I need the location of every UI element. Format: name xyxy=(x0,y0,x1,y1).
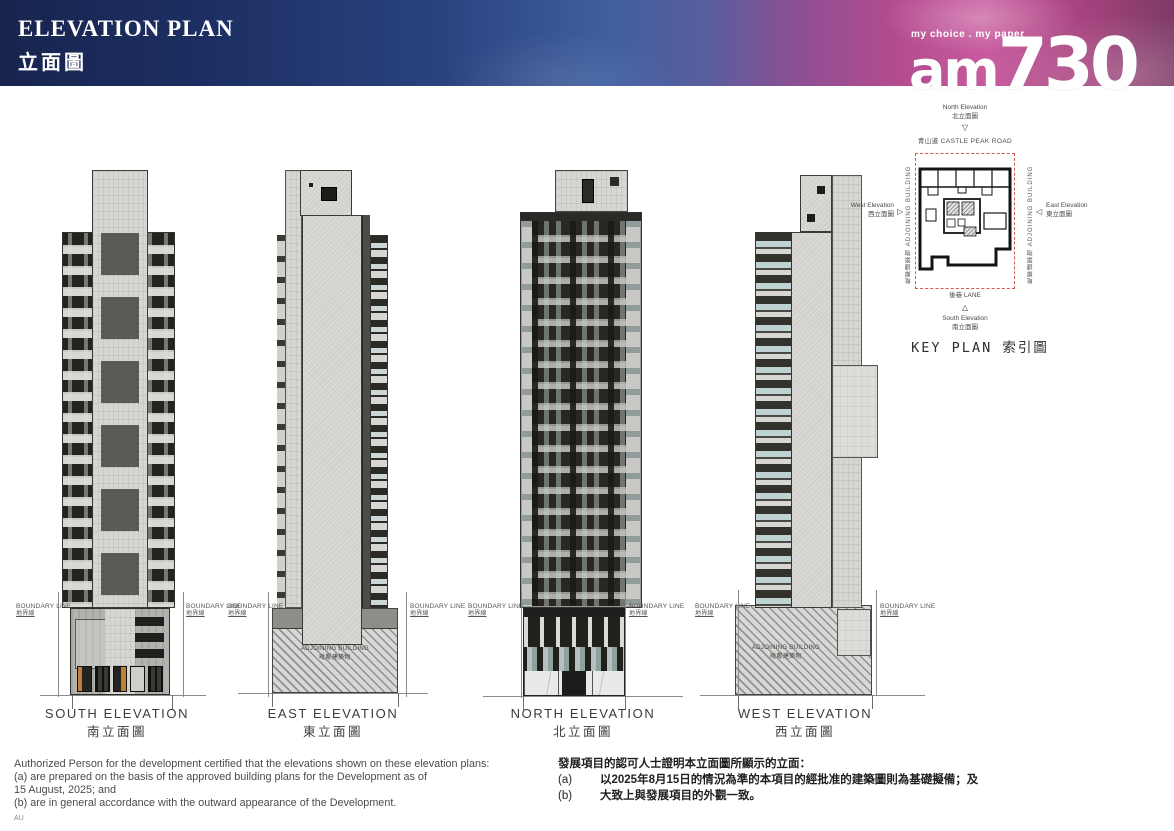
note-en-line1: Authorized Person for the development ce… xyxy=(14,758,534,771)
am730-logo: my choice . my paper am730 xyxy=(909,30,1136,100)
boundary-line-label: BOUNDARY LINE 地界線 xyxy=(228,603,283,619)
note-en-line2: (a) are prepared on the basis of the app… xyxy=(14,771,534,784)
footnote-code: AU xyxy=(14,815,24,822)
boundary-line-label: BOUNDARY LINE 地界線 xyxy=(16,603,71,619)
adjoining-label-en: ADJOINING BUILDING xyxy=(273,645,397,654)
ground-line xyxy=(238,693,428,694)
note-zh-b-text: 大致上與發展項目的外觀一致。 xyxy=(600,788,761,804)
boundary-label-zh: 地界線 xyxy=(468,611,523,619)
ground-line xyxy=(40,695,206,696)
west-elevation-label-zh: 西立面圖 xyxy=(700,721,910,740)
header-banner: ELEVATION PLAN 立面圖 my choice . my paper … xyxy=(0,0,1174,86)
key-plan-title: KEY PLAN 索引圖 xyxy=(850,336,1110,356)
north-label-en: North Elevation xyxy=(885,104,1045,113)
east-main-wall xyxy=(302,215,362,645)
logo-number: 730 xyxy=(998,22,1136,106)
shopfront-unit xyxy=(77,666,92,692)
west-label-en: West Elevation xyxy=(834,202,894,211)
ground-line xyxy=(700,695,925,696)
shopfront-unit xyxy=(130,666,145,692)
castle-peak-road-label: 青山道 CASTLE PEAK ROAD xyxy=(885,138,1045,147)
adjoining-building-label: ADJOINING BUILDING 毗鄰建築物 xyxy=(736,644,836,662)
key-plan-south-label: South Elevation 南立面圖 xyxy=(885,315,1045,333)
east-edge-windows xyxy=(277,235,285,608)
south-shopfront-row xyxy=(77,666,163,692)
dimension-tick xyxy=(272,693,273,707)
east-dark-band xyxy=(362,215,370,608)
key-plan: North Elevation 北立面圖 ▽ 青山道 CASTLE PEAK R… xyxy=(840,96,1174,368)
adjoining-building-label: ADJOINING BUILDING 毗鄰建築物 xyxy=(273,645,397,663)
north-podium-mullions xyxy=(524,617,624,647)
note-en-line3: 15 August, 2025; and xyxy=(14,784,534,797)
logo-wordmark: am730 xyxy=(909,28,1136,100)
north-elevation-label-zh: 北立面圖 xyxy=(478,721,688,740)
note-zh-item-b: (b) 大致上與發展項目的外觀一致。 xyxy=(558,788,998,804)
west-window-strip xyxy=(755,232,792,608)
adjoining-building-vertical-left: 毗鄰建築物 ADJOINING BUILDING xyxy=(904,162,913,288)
adjoining-building-vertical-right: 毗鄰建築物 ADJOINING BUILDING xyxy=(1026,162,1035,288)
west-top-structure xyxy=(800,175,832,232)
triangle-down-icon: ▽ xyxy=(885,124,1045,132)
south-podium xyxy=(70,608,170,695)
east-elevation-label: EAST ELEVATION xyxy=(228,706,438,721)
boundary-line-right xyxy=(876,590,877,696)
triangle-up-icon: △ xyxy=(885,304,1045,312)
shopfront-unit xyxy=(95,666,110,692)
north-parapet xyxy=(521,213,641,221)
page-title-block: ELEVATION PLAN 立面圖 xyxy=(18,16,234,75)
boundary-label-zh: 地界線 xyxy=(410,611,465,619)
west-label-zh: 西立面圖 xyxy=(834,211,894,220)
north-entrance-door xyxy=(562,671,586,695)
east-core-side-wall xyxy=(285,170,302,608)
west-top-window xyxy=(807,214,815,222)
east-label-en: East Elevation xyxy=(1046,202,1116,211)
boundary-line-label: BOUNDARY LINE 地界線 xyxy=(629,603,684,619)
boundary-line-right xyxy=(406,592,407,697)
east-roof-window xyxy=(321,187,337,201)
adjoining-label-zh: 毗鄰建築物 xyxy=(273,654,397,663)
lane-label: 後巷 LANE xyxy=(885,292,1045,301)
key-plan-north-label: North Elevation 北立面圖 xyxy=(885,104,1045,122)
north-podium-fascia xyxy=(524,609,624,617)
south-label-en: South Elevation xyxy=(885,315,1045,324)
page-title: ELEVATION PLAN xyxy=(18,16,234,42)
certification-note-en: Authorized Person for the development ce… xyxy=(14,758,534,810)
east-window-strip xyxy=(370,235,388,608)
brochure-page: ELEVATION PLAN 立面圖 my choice . my paper … xyxy=(0,0,1174,831)
note-zh-line1: 發展項目的認可人士證明本立面圖所顯示的立面： xyxy=(558,756,998,772)
south-elevation-drawing: BOUNDARY LINE 地界線 BOUNDARY LINE 地界線 SOUT… xyxy=(14,162,220,732)
logo-am: am xyxy=(909,39,998,102)
boundary-line-right xyxy=(625,592,626,698)
boundary-label-zh: 地界線 xyxy=(629,611,684,619)
north-podium xyxy=(523,608,625,696)
key-plan-east-label: East Elevation 東立面圖 xyxy=(1046,202,1116,220)
note-zh-item-a: (a) 以2025年8月15日的情況為準的本項目的經批准的建築圖則為基礎擬備；及 xyxy=(558,772,998,788)
north-tower-body xyxy=(520,212,642,608)
triangle-right-icon: ▷ xyxy=(897,208,903,216)
south-elevation-label-zh: 南立面圖 xyxy=(14,721,220,740)
north-podium-windows xyxy=(524,647,624,671)
note-zh-a-label: (a) xyxy=(558,772,600,788)
page-title-zh: 立面圖 xyxy=(18,46,234,75)
south-core-panels xyxy=(101,233,139,607)
triangle-left-icon: ◁ xyxy=(1036,208,1042,216)
north-roof-vent xyxy=(610,177,619,186)
east-elevation-label-zh: 東立面圖 xyxy=(228,721,438,740)
east-label-zh: 東立面圖 xyxy=(1046,211,1116,220)
boundary-line-right xyxy=(183,592,184,697)
boundary-label-zh: 地界線 xyxy=(16,611,71,619)
west-elevation-label: WEST ELEVATION xyxy=(700,706,910,721)
south-label-zh: 南立面圖 xyxy=(885,324,1045,333)
east-roof-vent xyxy=(309,183,313,187)
key-plan-west-label: West Elevation 西立面圖 xyxy=(834,202,894,220)
note-zh-a-text: 以2025年8月15日的情況為準的本項目的經批准的建築圖則為基礎擬備；及 xyxy=(600,772,978,788)
certification-note-zh: 發展項目的認可人士證明本立面圖所顯示的立面： (a) 以2025年8月15日的情… xyxy=(558,756,998,804)
west-podium-adjoining: ADJOINING BUILDING 毗鄰建築物 xyxy=(735,605,872,695)
adjoining-label-en: ADJOINING BUILDING xyxy=(736,644,836,653)
boundary-line-label: BOUNDARY LINE 地界線 xyxy=(880,603,935,619)
boundary-label-zh: 地界線 xyxy=(228,611,283,619)
west-main-wall xyxy=(792,232,832,608)
north-label-zh: 北立面圖 xyxy=(885,113,1045,122)
north-edge-strip-left xyxy=(522,221,532,606)
north-edge-strip-right xyxy=(626,221,640,606)
north-roof-structure xyxy=(555,170,628,212)
north-window-grid xyxy=(532,221,626,606)
west-top-window xyxy=(817,186,825,194)
boundary-line-label: BOUNDARY LINE 地界線 xyxy=(695,603,750,619)
note-en-line4: (b) are in general accordance with the o… xyxy=(14,797,534,810)
adjoining-label-zh: 毗鄰建築物 xyxy=(736,653,836,662)
note-zh-b-label: (b) xyxy=(558,788,600,804)
boundary-label-zh: 地界線 xyxy=(880,611,935,619)
east-elevation-drawing: ADJOINING BUILDING 毗鄰建築物 BOUNDARY LINE 地… xyxy=(228,162,438,732)
boundary-line-label: BOUNDARY LINE 地界線 xyxy=(410,603,465,619)
key-plan-floorplan xyxy=(918,157,1012,285)
shopfront-unit xyxy=(148,666,163,692)
north-elevation-label: NORTH ELEVATION xyxy=(478,706,688,721)
west-podium-stone-block xyxy=(837,609,871,656)
shopfront-unit xyxy=(113,666,128,692)
north-shopfront-glass xyxy=(524,671,624,695)
ground-line xyxy=(483,696,683,697)
east-roof-structure xyxy=(300,170,352,216)
south-elevation-label: SOUTH ELEVATION xyxy=(14,706,220,721)
dimension-tick xyxy=(398,693,399,707)
north-roof-machine-room xyxy=(582,179,594,203)
north-elevation-drawing: BOUNDARY LINE 地界線 BOUNDARY LINE 地界線 NORT… xyxy=(478,162,688,732)
boundary-label-zh: 地界線 xyxy=(695,611,750,619)
west-projecting-block xyxy=(832,365,878,458)
south-core-column xyxy=(92,170,148,608)
boundary-line-label: BOUNDARY LINE 地界線 xyxy=(468,603,523,619)
